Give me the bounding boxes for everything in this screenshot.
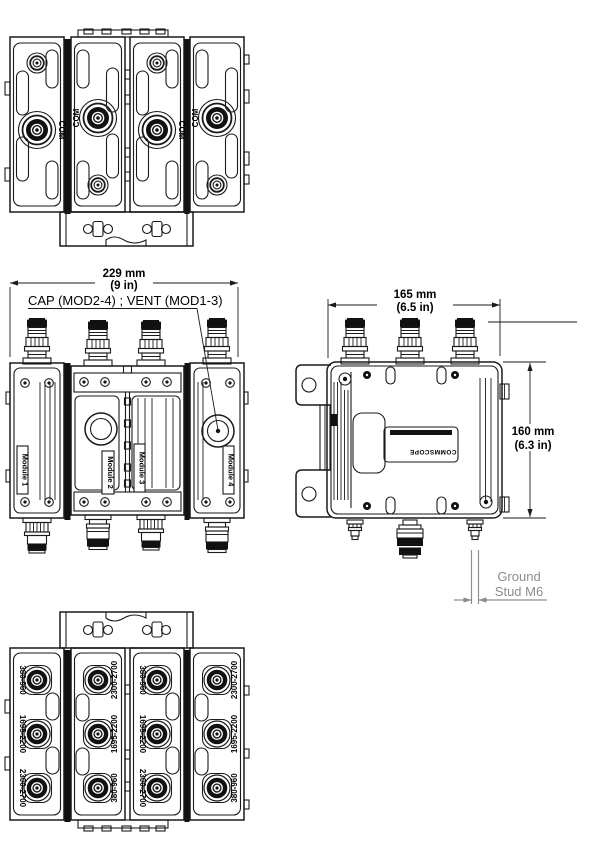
side-view-brackets [296, 365, 331, 517]
bottom-connector [23, 518, 51, 553]
vent-module-2 [85, 413, 117, 445]
front-view: 229 mm (9 in) CAP (MOD2-4) ; VENT (MOD1-… [6, 266, 248, 553]
freq-label-c2-r3: 380-960 [110, 773, 119, 803]
antenna-port-connector [207, 175, 227, 195]
com-port-connector [80, 100, 117, 137]
ground-label-line1: Ground [497, 569, 540, 584]
side-view-body [327, 362, 509, 518]
dim-160-label: 160 mm [512, 426, 555, 438]
ground-stud [467, 520, 483, 540]
gasket-bar [65, 650, 71, 822]
front-view-modules-2-3: Module 2 Module 3 [71, 366, 184, 515]
antenna-port-connector [88, 175, 108, 195]
freq-label-c3-r1: 380-960 [138, 665, 147, 695]
bottom-stud [347, 520, 363, 540]
dim-width-label: 229 mm [103, 268, 146, 280]
module-3-label: Module 3 [138, 452, 147, 485]
band-connector [84, 720, 113, 749]
dim-width-229: 229 mm (9 in) [10, 266, 238, 357]
com-port-connector [139, 112, 176, 149]
top-connector [137, 320, 165, 366]
module-2-label: Module 2 [106, 456, 115, 489]
dim-height-160: 160 mm (6.3 in) [503, 362, 561, 518]
top-connector [23, 318, 51, 364]
band-connector [203, 666, 232, 695]
top-connector [203, 318, 231, 364]
gasket-bar [185, 363, 190, 520]
front-view-module-4: Module 4 [190, 363, 244, 518]
bottom-view: 380-960 1695-2200 2300-2700 2300-2700 16… [5, 612, 249, 831]
freq-label-c3-r2: 1695-2200 [138, 715, 147, 754]
freq-label-c4-r3: 380-960 [230, 773, 239, 803]
bottom-connector [85, 515, 111, 550]
ground-stud-annotation: Ground Stud M6 [454, 550, 547, 604]
side-view: 165 mm (6.5 in) [296, 288, 577, 604]
top-connector [396, 318, 424, 364]
com-label-2: COM [72, 108, 81, 127]
bottom-connector [137, 515, 165, 550]
com-port-connector [19, 112, 56, 149]
brand-label: COMMSCOPE [409, 448, 456, 455]
freq-label-c2-r2: 1695-2200 [110, 714, 119, 753]
com-label-4: COM [191, 108, 200, 127]
bottom-view-mounting-bracket [60, 612, 193, 648]
top-view-top-rail [78, 29, 168, 37]
dim-width-inches-label: (9 in) [110, 280, 138, 292]
freq-label-c4-r2: 1695-2200 [230, 714, 239, 753]
band-connector [203, 720, 232, 749]
dim-165-inches-label: (6.5 in) [396, 302, 433, 314]
module-4-label: Module 4 [227, 454, 236, 487]
gasket-bar [65, 363, 71, 520]
freq-label-c2-r1: 2300-2700 [110, 660, 119, 699]
freq-label-c4-r1: 2300-2700 [230, 660, 239, 699]
band-connector [203, 774, 232, 803]
com-port-connector [199, 100, 236, 137]
bottom-view-bottom-rail [78, 820, 168, 831]
bottom-main-connector [397, 520, 423, 558]
product-label: COMMSCOPE [384, 427, 458, 462]
freq-label-c3-r3: 2300-2700 [138, 769, 147, 808]
top-connector [341, 318, 369, 364]
drawing-page: COM COM COM COM 229 mm (9 in) CAP (MOD2-… [0, 0, 607, 866]
band-connector [84, 774, 113, 803]
top-view-mounting-bracket [60, 212, 193, 246]
dim-160-inches-label: (6.3 in) [514, 440, 551, 452]
module-1-label: Module 1 [21, 454, 30, 487]
cap-vent-label: CAP (MOD2-4) ; VENT (MOD1-3) [28, 293, 223, 308]
com-label-1: COM [57, 121, 66, 140]
front-view-module-1: Module 1 [10, 363, 64, 518]
band-connector [84, 666, 113, 695]
freq-label-c1-r2: 1695-2200 [18, 715, 27, 754]
bottom-connector [204, 518, 230, 553]
antenna-port-connector [147, 53, 167, 73]
top-connector [451, 318, 479, 364]
top-view: COM COM COM COM [5, 29, 249, 246]
antenna-port-connector [27, 53, 47, 73]
freq-label-c1-r1: 380-960 [18, 665, 27, 695]
ground-label-line2: Stud M6 [495, 584, 543, 599]
com-label-3: COM [177, 121, 186, 140]
dim-165-label: 165 mm [394, 289, 437, 301]
technical-drawing: COM COM COM COM 229 mm (9 in) CAP (MOD2-… [0, 0, 607, 866]
freq-label-c1-r3: 2300-2700 [18, 769, 27, 808]
top-connector [84, 320, 112, 366]
gasket-bar [185, 650, 190, 822]
